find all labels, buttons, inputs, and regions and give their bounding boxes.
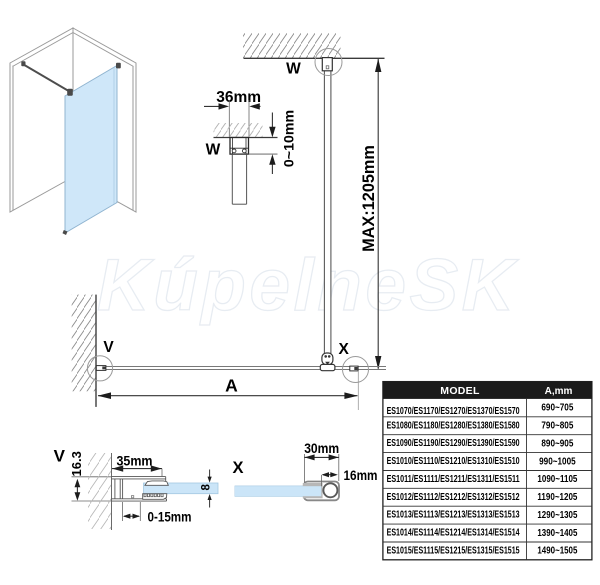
svg-text:V: V	[54, 447, 66, 466]
svg-text:890~905: 890~905	[541, 438, 573, 449]
svg-text:ES1015/ES1115/ES1215/ES1315/ES: ES1015/ES1115/ES1215/ES1315/ES1515	[387, 545, 520, 557]
svg-text:1190~1205: 1190~1205	[537, 492, 577, 503]
svg-text:1290~1305: 1290~1305	[537, 510, 577, 521]
svg-text:690~705: 690~705	[541, 403, 573, 414]
svg-text:ES1010/ES1110/ES1210/ES1310/ES: ES1010/ES1110/ES1210/ES1310/ES1510	[387, 455, 520, 467]
svg-text:A: A	[225, 376, 238, 396]
svg-text:A,mm: A,mm	[545, 386, 573, 397]
svg-text:MODEL: MODEL	[440, 385, 480, 397]
svg-text:8: 8	[200, 484, 212, 491]
svg-text:ES1080/ES1180/ES1280/ES1380/ES: ES1080/ES1180/ES1280/ES1380/ES1580	[387, 419, 520, 431]
svg-text:1490~1505: 1490~1505	[537, 546, 577, 557]
svg-text:990~1005: 990~1005	[539, 456, 576, 467]
svg-text:ES1090/ES1190/ES1290/ES1390/ES: ES1090/ES1190/ES1290/ES1390/ES1590	[387, 437, 520, 449]
svg-text:X: X	[339, 341, 350, 358]
svg-text:V: V	[103, 339, 114, 356]
svg-text:0-15mm: 0-15mm	[148, 509, 192, 525]
svg-text:ES1014/ES1114/ES1214/ES1314/ES: ES1014/ES1114/ES1214/ES1314/ES1514	[387, 527, 520, 539]
svg-text:ES1013/ES1113/ES1213/ES1313/ES: ES1013/ES1113/ES1213/ES1313/ES1513	[387, 509, 520, 521]
svg-text:790~805: 790~805	[541, 421, 573, 432]
svg-text:30mm: 30mm	[304, 440, 339, 456]
svg-text:ES1012/ES1112/ES1212/ES1312/ES: ES1012/ES1112/ES1212/ES1312/ES1512	[387, 491, 520, 503]
svg-text:36mm: 36mm	[216, 89, 261, 106]
svg-text:KúpelneSK: KúpelneSK	[97, 245, 520, 326]
svg-text:MAX:1205mm: MAX:1205mm	[360, 145, 378, 252]
svg-text:1390~1405: 1390~1405	[537, 528, 577, 539]
svg-text:ES1011/ES1111/ES1211/ES1311/ES: ES1011/ES1111/ES1211/ES1311/ES1511	[387, 473, 520, 485]
svg-text:1090~1105: 1090~1105	[537, 474, 577, 485]
svg-text:W: W	[286, 61, 301, 78]
svg-text:16mm: 16mm	[344, 467, 378, 483]
svg-text:ES1070/ES1170/ES1270/ES1370/ES: ES1070/ES1170/ES1270/ES1370/ES1570	[387, 405, 520, 417]
svg-text:0~10mm: 0~10mm	[281, 110, 297, 167]
svg-text:16.3: 16.3	[69, 451, 84, 476]
svg-text:W: W	[206, 142, 221, 159]
svg-text:X: X	[232, 459, 243, 477]
